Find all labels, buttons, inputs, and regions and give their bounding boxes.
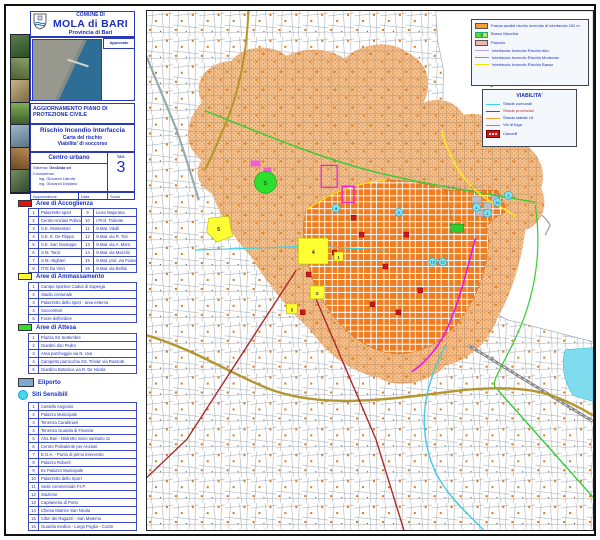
cancelli-icon xyxy=(486,130,500,138)
table-row: 12Stazione xyxy=(28,491,137,499)
approval-strip: Approvazione Data Scala xyxy=(30,192,135,200)
section-accoglienza-header: Aree di Accoglienza xyxy=(18,200,93,207)
table-row: 1Palazzetto sport 9Liceo Majorana xyxy=(28,209,137,217)
strade-comunali-line-icon xyxy=(486,104,500,105)
table-row: 1Castello Angioino xyxy=(28,403,137,411)
svg-text:2: 2 xyxy=(486,212,488,216)
risk-legend-box: Fascia analisi rischio incendio di inter… xyxy=(471,19,589,86)
ammassamento-table: 1Campo sportivo Caduti di Superga 2Stadi… xyxy=(28,282,137,323)
section-siti-header: Siti Sensibili xyxy=(18,390,68,400)
table-row: 9Ex Palazzo Municipale xyxy=(28,467,137,475)
section-title: Aree di Accoglienza xyxy=(36,201,93,207)
legend-item: Vie di fuga xyxy=(486,123,573,128)
table-row: 15Citta' dei Ragazzi - San Materno xyxy=(28,515,137,523)
subject-sub2: Viabilita' di soccorso xyxy=(33,141,132,147)
data-label: Data xyxy=(79,193,108,199)
section-title: Aree di Attesa xyxy=(36,325,76,331)
accoglienza-table: 1Palazzetto sport 9Liceo Majorana 2Centr… xyxy=(28,208,137,273)
table-row: 4Soccorritori xyxy=(28,307,137,315)
update-title-box: AGGIORNAMENTO PIANO DI PROTEZIONE CIVILE xyxy=(30,103,135,124)
table-row: 2Centro Anziani Polival. 10I.Prof. Tride… xyxy=(28,217,137,225)
municipal-crest-icon xyxy=(33,13,47,30)
subject-box: Rischio Incendio Interfaccia Carta del r… xyxy=(30,124,135,152)
svg-text:9: 9 xyxy=(398,211,400,215)
table-row: 5S.E. San Giuseppe 13S.Mat. via A. Moro xyxy=(28,241,137,249)
table-row: 11Sede commerciale F.I.P. xyxy=(28,483,137,491)
pascolo-patch xyxy=(251,160,261,166)
section-title: Eliporto xyxy=(38,380,61,386)
table-row: 3S.E. Montessori 11S.Mat. Vitulli xyxy=(28,225,137,233)
sistema-value: GeoData srl xyxy=(49,165,71,170)
siti-swatch-icon xyxy=(18,390,28,400)
table-row: 7E.G.A. - Punto di primo intervento xyxy=(28,451,137,459)
sistema-label: Sistema: xyxy=(33,165,48,170)
legend-item: Bosco Macchia xyxy=(475,32,585,38)
legend-item: Strade comunali xyxy=(486,102,573,107)
table-row: 4Tenenza Guardia di Finanza xyxy=(28,427,137,435)
photo-thumbnail xyxy=(11,58,29,81)
section-attesa-header: Aree di Attesa xyxy=(18,324,76,331)
fascia-swatch-icon xyxy=(475,23,488,29)
legend-item: Fascia analisi rischio incendio di inter… xyxy=(475,23,585,29)
aerial-photo xyxy=(32,39,102,101)
rischio-basso-line-icon xyxy=(475,64,489,65)
page-title: MOLA di BARI xyxy=(47,18,134,30)
svg-text:12: 12 xyxy=(441,261,445,265)
attesa-swatch-icon xyxy=(18,324,32,331)
table-row: 6Centro Polivalente per Anziani xyxy=(28,443,137,451)
legend-item: Cancelli xyxy=(486,130,573,138)
table-row: 5Giardino Botanico via R. De Nicola xyxy=(28,366,137,374)
photo-thumbnail xyxy=(11,170,29,193)
svg-text:8: 8 xyxy=(335,207,337,211)
photo-thumbnail xyxy=(11,80,29,103)
rischio-alto-line-icon xyxy=(475,50,489,51)
viability-title: VIABILITA' xyxy=(486,93,573,99)
table-row: 2Giardini don Pedro xyxy=(28,342,137,350)
legend-item: Interfaccia Incendio Rischio Basso xyxy=(475,63,585,68)
table-row: 14Chiesa Matrice San Nicola xyxy=(28,507,137,515)
strade-provinciali-line-icon xyxy=(486,111,500,112)
table-row: 1Piazza XX Settembre xyxy=(28,334,137,342)
table-row: 1Campo sportivo Caduti di Superga xyxy=(28,283,137,291)
update-line2: PROTEZIONE CIVILE xyxy=(33,112,132,118)
accoglienza-swatch-icon xyxy=(18,200,32,207)
scala-label: Scala xyxy=(108,193,134,199)
table-row: 2Palazzo Municipale xyxy=(28,411,137,419)
photo-thumbnail xyxy=(11,148,29,171)
viability-legend-box: VIABILITA' Strade comunali Strade provin… xyxy=(482,89,577,147)
legend-item: Strada statale 16 xyxy=(486,116,573,121)
svg-text:5: 5 xyxy=(264,181,267,187)
vie-di-fuga-line-icon xyxy=(486,125,500,126)
subject-title: Rischio Incendio Interfaccia xyxy=(33,127,132,134)
map-canvas: 5 4 1 2 3 5 1 2 13 xyxy=(146,10,594,531)
piazza-green xyxy=(451,224,464,232)
legend-item: Strade provinciali xyxy=(486,109,573,114)
provincia-line: Provincia di Bari xyxy=(47,30,134,36)
table-row: 4S.E. E. De Filippo 12S.Mat. via R. Toti xyxy=(28,233,137,241)
consultant-2: ing. Giovanni Depiano xyxy=(31,181,107,186)
pascolo-swatch-icon xyxy=(475,40,488,46)
table-row: 3Palazzetto dello sport - area esterna xyxy=(28,299,137,307)
attesa-markers: 5 xyxy=(255,171,277,193)
section-ammassamento-header: Aree di Ammassamento xyxy=(18,273,104,280)
legend-item: Pascolo xyxy=(475,40,585,46)
approvato-box: Approvato xyxy=(103,38,135,49)
plan-sheet: COMUNE DI MOLA di BARI Provincia di Bari… xyxy=(0,0,600,540)
legend-item: Interfaccia Incendio Rischio Moderato xyxy=(475,56,585,61)
table-row: 8Palazzo Roberti xyxy=(28,459,137,467)
table-row: 13Capitaneria di Porto xyxy=(28,499,137,507)
area-label: Centro urbano xyxy=(31,153,107,164)
section-eliporto-header: Eliporto xyxy=(18,378,61,387)
svg-text:5: 5 xyxy=(217,227,220,233)
table-row: 3Tenenza Carabinieri xyxy=(28,419,137,427)
table-row: 3Area parcheggio via N. Uva xyxy=(28,350,137,358)
section-title: Aree di Ammassamento xyxy=(36,274,104,280)
place-label: MOLA DI BARI xyxy=(448,184,484,189)
svg-text:3: 3 xyxy=(507,194,509,198)
photo-thumbnail xyxy=(11,35,29,58)
table-row: 2Stadio comunale xyxy=(28,291,137,299)
svg-text:10: 10 xyxy=(431,261,435,265)
table-row: 7S.M. Alighieri 15S.Mat. prol. via Fiume xyxy=(28,257,137,265)
svg-text:1: 1 xyxy=(475,206,477,210)
table-row: 4Campetto parrocchia SS. Trinita' via Ru… xyxy=(28,358,137,366)
sheet-info-box: Centro urbano Sistema: GeoData srl Consu… xyxy=(30,152,135,192)
svg-text:13: 13 xyxy=(495,201,499,205)
photo-strip xyxy=(10,34,30,194)
table-row: 16Guardia medica - Largo Puglia - Cozze xyxy=(28,523,137,531)
photo-thumbnail xyxy=(11,125,29,148)
strada-statale-line-icon xyxy=(486,118,500,119)
ammassamento-swatch-icon xyxy=(18,273,32,280)
svg-text:2: 2 xyxy=(316,291,319,297)
approvazione-label: Approvazione xyxy=(31,193,79,199)
legend-item: Interfaccia Incendio Rischio Alto xyxy=(475,49,585,54)
bosco-swatch-icon xyxy=(475,32,488,38)
photo-thumbnail xyxy=(11,103,29,126)
section-title: Siti Sensibili xyxy=(32,392,68,398)
eliporto-swatch-icon xyxy=(18,378,34,387)
table-row: 5Forze dell'ordine xyxy=(28,315,137,323)
rischio-moderato-line-icon xyxy=(475,57,489,58)
attesa-table: 1Piazza XX Settembre 2Giardini don Pedro… xyxy=(28,333,137,374)
siti-table: 1Castello Angioino 2Palazzo Municipale 3… xyxy=(28,402,137,531)
tav-number: 3 xyxy=(108,159,134,177)
table-row: 8ITIS Da Vinci 16S.Mat. via Bellini xyxy=(28,265,137,273)
table-row: 5ASL Bari - Distretto socio sanitario 11 xyxy=(28,435,137,443)
table-row: 6S.M. Tanzi 14S.Mat. via Mazzini xyxy=(28,249,137,257)
table-row: 10Palazzetto dello Sport xyxy=(28,475,137,483)
